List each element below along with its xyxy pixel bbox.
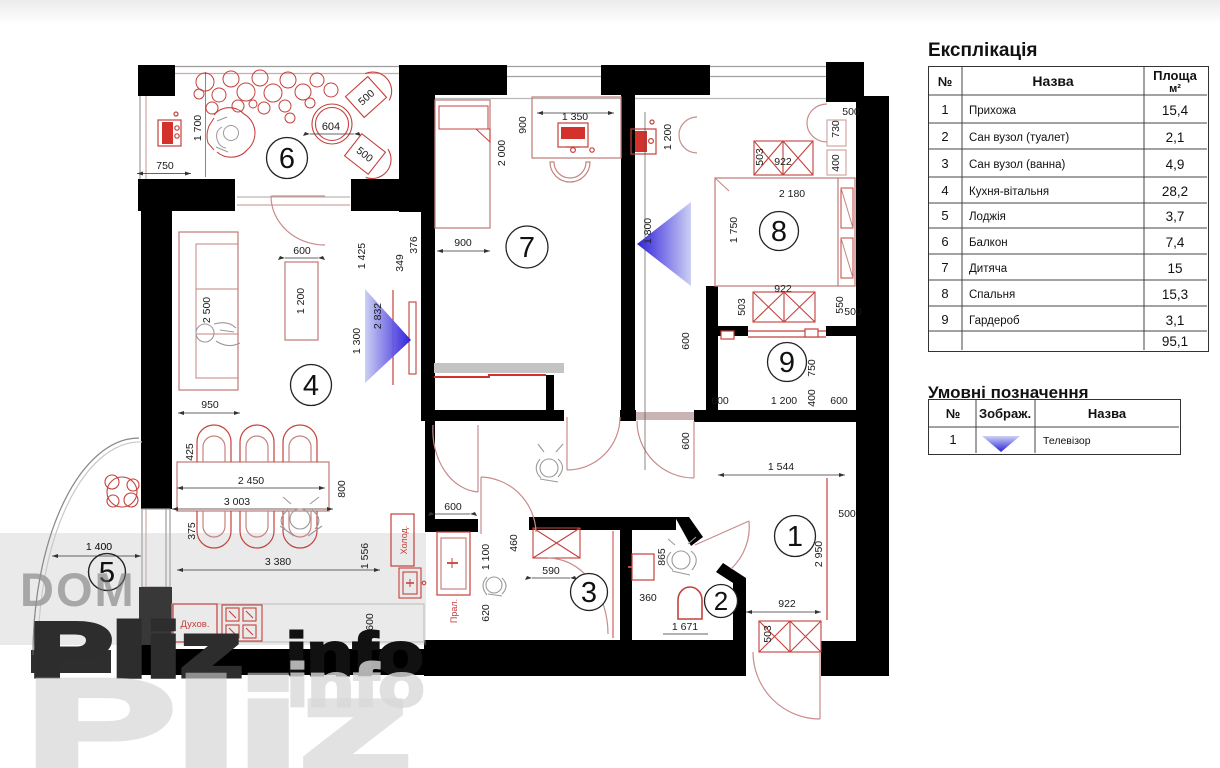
svg-text:950: 950 xyxy=(201,399,219,411)
svg-text:8: 8 xyxy=(941,286,948,301)
svg-text:503: 503 xyxy=(736,298,748,316)
svg-text:Телевізор: Телевізор xyxy=(1043,435,1091,447)
svg-text:2: 2 xyxy=(714,586,728,616)
svg-text:Дитяча: Дитяча xyxy=(969,263,1008,275)
svg-text:2: 2 xyxy=(941,129,948,144)
svg-text:600: 600 xyxy=(711,395,729,407)
svg-text:503: 503 xyxy=(754,148,766,166)
svg-text:Балкон: Балкон xyxy=(969,237,1008,249)
svg-text:865: 865 xyxy=(656,548,668,566)
svg-text:1 750: 1 750 xyxy=(728,217,740,243)
svg-text:900: 900 xyxy=(517,116,529,134)
svg-text:1: 1 xyxy=(941,102,948,117)
svg-text:1: 1 xyxy=(949,432,956,447)
svg-text:Назва: Назва xyxy=(1032,73,1073,89)
svg-text:460: 460 xyxy=(508,534,520,552)
svg-text:3 003: 3 003 xyxy=(224,496,250,508)
svg-text:600: 600 xyxy=(293,245,311,257)
svg-text:3,7: 3,7 xyxy=(1166,209,1185,224)
svg-text:349: 349 xyxy=(394,254,406,272)
svg-text:600: 600 xyxy=(444,501,462,513)
svg-text:2 000: 2 000 xyxy=(496,140,508,166)
svg-text:730: 730 xyxy=(830,120,842,138)
svg-text:503: 503 xyxy=(762,625,774,643)
svg-text:info: info xyxy=(287,653,424,719)
svg-text:2 500: 2 500 xyxy=(201,297,213,323)
svg-text:900: 900 xyxy=(454,237,472,249)
svg-text:376: 376 xyxy=(408,236,420,254)
svg-text:1 100: 1 100 xyxy=(480,544,492,570)
svg-text:2 832: 2 832 xyxy=(372,303,384,329)
svg-text:400: 400 xyxy=(806,389,818,407)
svg-text:1 671: 1 671 xyxy=(672,621,698,633)
svg-text:400: 400 xyxy=(830,154,842,172)
svg-text:Прихожа: Прихожа xyxy=(969,105,1017,117)
svg-text:1 700: 1 700 xyxy=(192,115,204,141)
svg-text:Лоджія: Лоджія xyxy=(969,211,1006,223)
svg-text:604: 604 xyxy=(322,121,340,133)
svg-text:4: 4 xyxy=(941,183,948,198)
svg-text:Прал.: Прал. xyxy=(449,599,459,623)
svg-text:1 300: 1 300 xyxy=(351,328,363,354)
svg-text:3: 3 xyxy=(581,577,597,609)
svg-text:600: 600 xyxy=(830,395,848,407)
svg-text:Сан вузол (туалет): Сан вузол (туалет) xyxy=(969,132,1069,144)
svg-text:1 200: 1 200 xyxy=(662,124,674,150)
svg-text:1 425: 1 425 xyxy=(356,243,368,269)
svg-text:500: 500 xyxy=(842,106,860,118)
svg-text:15,3: 15,3 xyxy=(1162,287,1188,302)
svg-text:15,4: 15,4 xyxy=(1162,103,1189,118)
svg-text:15: 15 xyxy=(1167,261,1182,276)
svg-text:500: 500 xyxy=(844,306,862,318)
svg-text:7: 7 xyxy=(941,260,948,275)
svg-text:922: 922 xyxy=(774,283,792,295)
svg-text:500: 500 xyxy=(838,508,856,520)
svg-text:2 950: 2 950 xyxy=(813,541,825,567)
svg-text:Зображ.: Зображ. xyxy=(979,406,1031,421)
svg-text:№: № xyxy=(946,406,961,421)
svg-text:3 380: 3 380 xyxy=(265,556,291,568)
svg-text:2,1: 2,1 xyxy=(1166,130,1185,145)
svg-text:1 400: 1 400 xyxy=(86,541,112,553)
svg-text:6: 6 xyxy=(941,234,948,249)
svg-text:Назва: Назва xyxy=(1088,406,1127,421)
svg-text:1: 1 xyxy=(787,521,803,553)
svg-text:1 800: 1 800 xyxy=(642,218,654,244)
svg-text:2 450: 2 450 xyxy=(238,475,264,487)
svg-text:3: 3 xyxy=(941,156,948,171)
svg-text:360: 360 xyxy=(639,592,657,604)
svg-text:7: 7 xyxy=(519,232,535,264)
svg-text:1 200: 1 200 xyxy=(295,288,307,314)
svg-text:922: 922 xyxy=(774,156,792,168)
svg-text:500: 500 xyxy=(354,145,375,165)
svg-text:Гардероб: Гардероб xyxy=(969,315,1020,327)
svg-text:500: 500 xyxy=(356,87,377,108)
svg-text:Кухня-вітальня: Кухня-вітальня xyxy=(969,186,1049,198)
svg-text:620: 620 xyxy=(480,604,492,622)
svg-text:800: 800 xyxy=(336,480,348,498)
svg-text:375: 375 xyxy=(186,522,198,540)
svg-text:28,2: 28,2 xyxy=(1162,184,1188,199)
svg-text:8: 8 xyxy=(771,216,787,248)
svg-text:Холод.: Холод. xyxy=(399,526,409,555)
svg-text:1 556: 1 556 xyxy=(359,543,371,569)
svg-text:1 544: 1 544 xyxy=(768,461,794,473)
svg-text:Спальня: Спальня xyxy=(969,289,1015,301)
svg-text:2 180: 2 180 xyxy=(779,188,805,200)
svg-text:3,1: 3,1 xyxy=(1166,313,1185,328)
svg-text:Площа: Площа xyxy=(1153,68,1197,83)
svg-text:4: 4 xyxy=(303,370,319,402)
svg-text:600: 600 xyxy=(680,332,692,350)
svg-text:922: 922 xyxy=(778,598,796,610)
svg-text:1 200: 1 200 xyxy=(771,395,797,407)
svg-text:5: 5 xyxy=(99,557,115,589)
svg-text:590: 590 xyxy=(542,565,560,577)
svg-text:9: 9 xyxy=(941,312,948,327)
svg-text:600: 600 xyxy=(680,432,692,450)
svg-text:95,1: 95,1 xyxy=(1162,334,1188,349)
svg-text:7,4: 7,4 xyxy=(1166,235,1185,250)
svg-text:425: 425 xyxy=(184,443,196,461)
svg-text:№: № xyxy=(938,74,953,89)
svg-text:4,9: 4,9 xyxy=(1166,157,1185,172)
svg-text:750: 750 xyxy=(156,160,174,172)
svg-text:5: 5 xyxy=(941,208,948,223)
svg-text:Сан вузол (ванна): Сан вузол (ванна) xyxy=(969,159,1065,171)
svg-text:9: 9 xyxy=(779,347,795,379)
svg-text:750: 750 xyxy=(806,359,818,377)
svg-text:6: 6 xyxy=(279,143,295,175)
svg-text:м²: м² xyxy=(1169,83,1181,95)
